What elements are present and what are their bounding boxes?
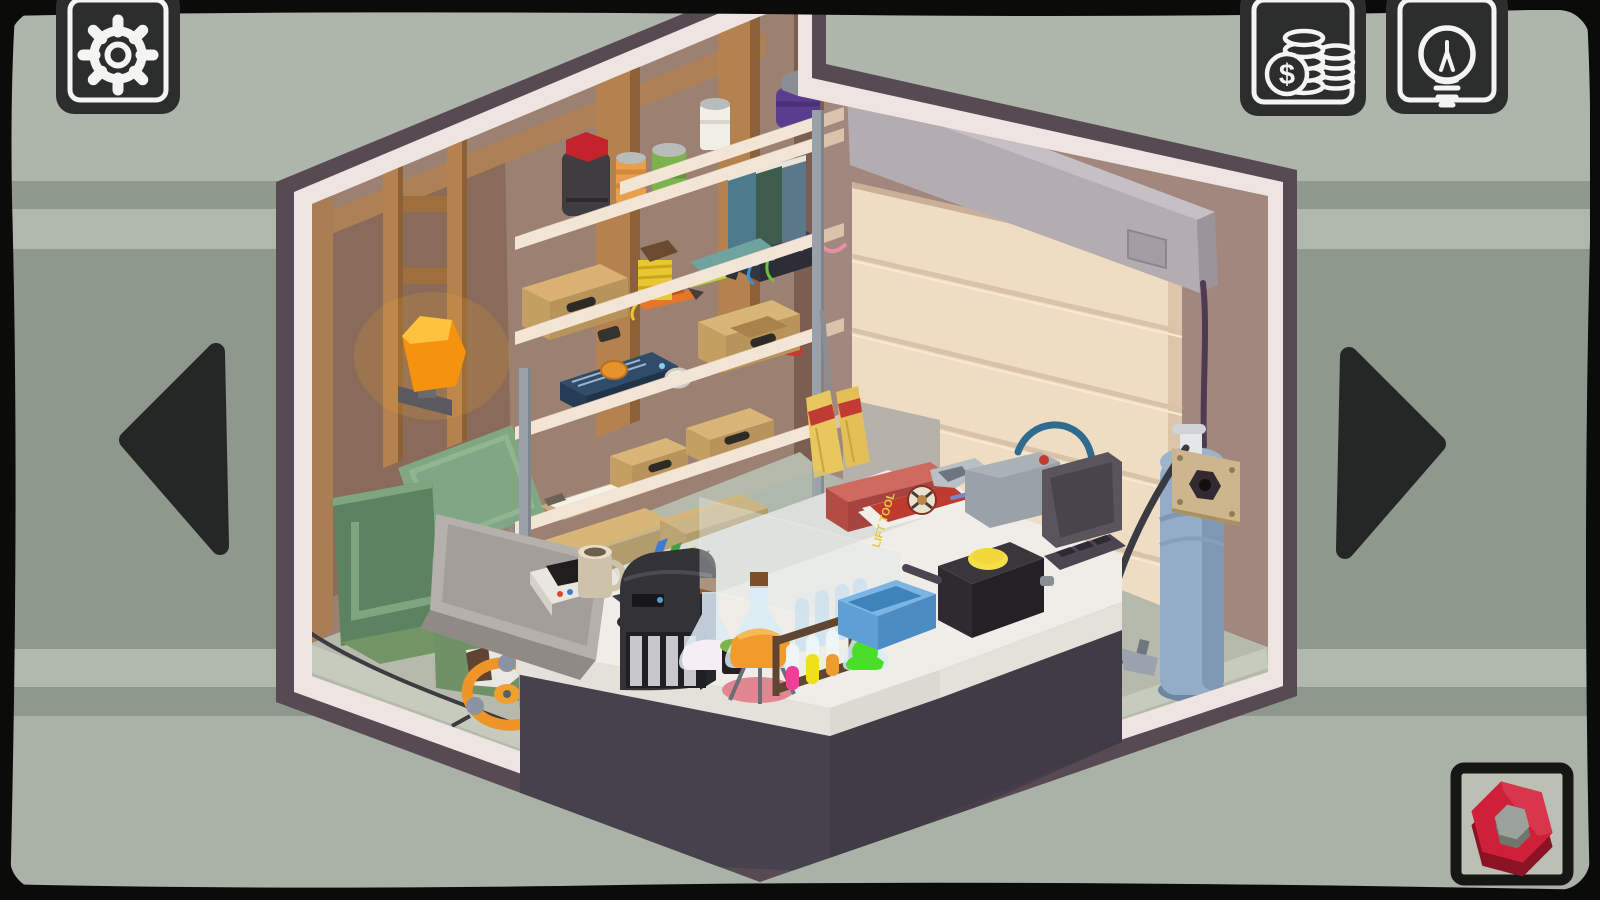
dark-jar[interactable]: [562, 132, 610, 216]
inventory-slot[interactable]: [1456, 768, 1568, 880]
hint-button[interactable]: [1386, 0, 1508, 114]
settings-button[interactable]: [56, 0, 180, 114]
coins-button[interactable]: $: [1240, 0, 1366, 116]
currency-symbol: $: [1279, 59, 1295, 91]
game-stage: LIFT TOOL: [0, 0, 1600, 900]
white-can[interactable]: [700, 98, 730, 150]
door-cable[interactable]: [1203, 283, 1205, 446]
wall-lamp[interactable]: [354, 292, 510, 420]
